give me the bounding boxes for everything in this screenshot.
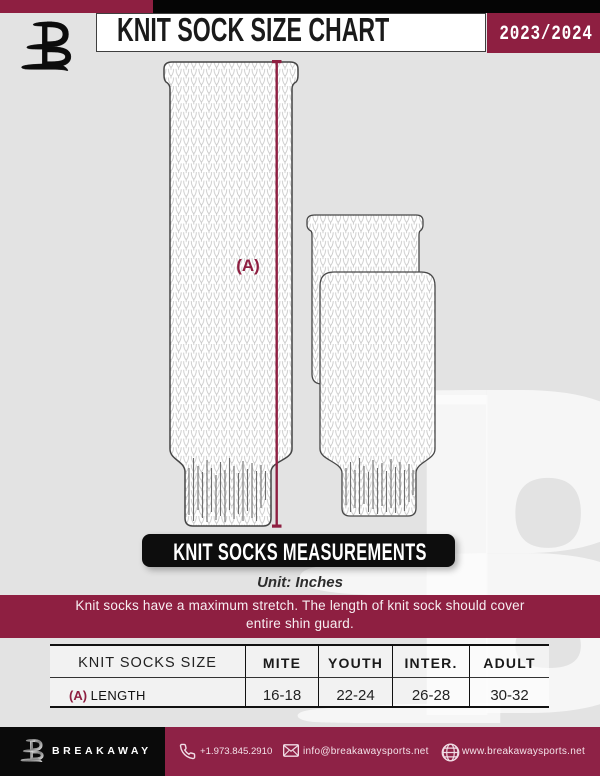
svg-text:(A): (A) [236,256,260,275]
